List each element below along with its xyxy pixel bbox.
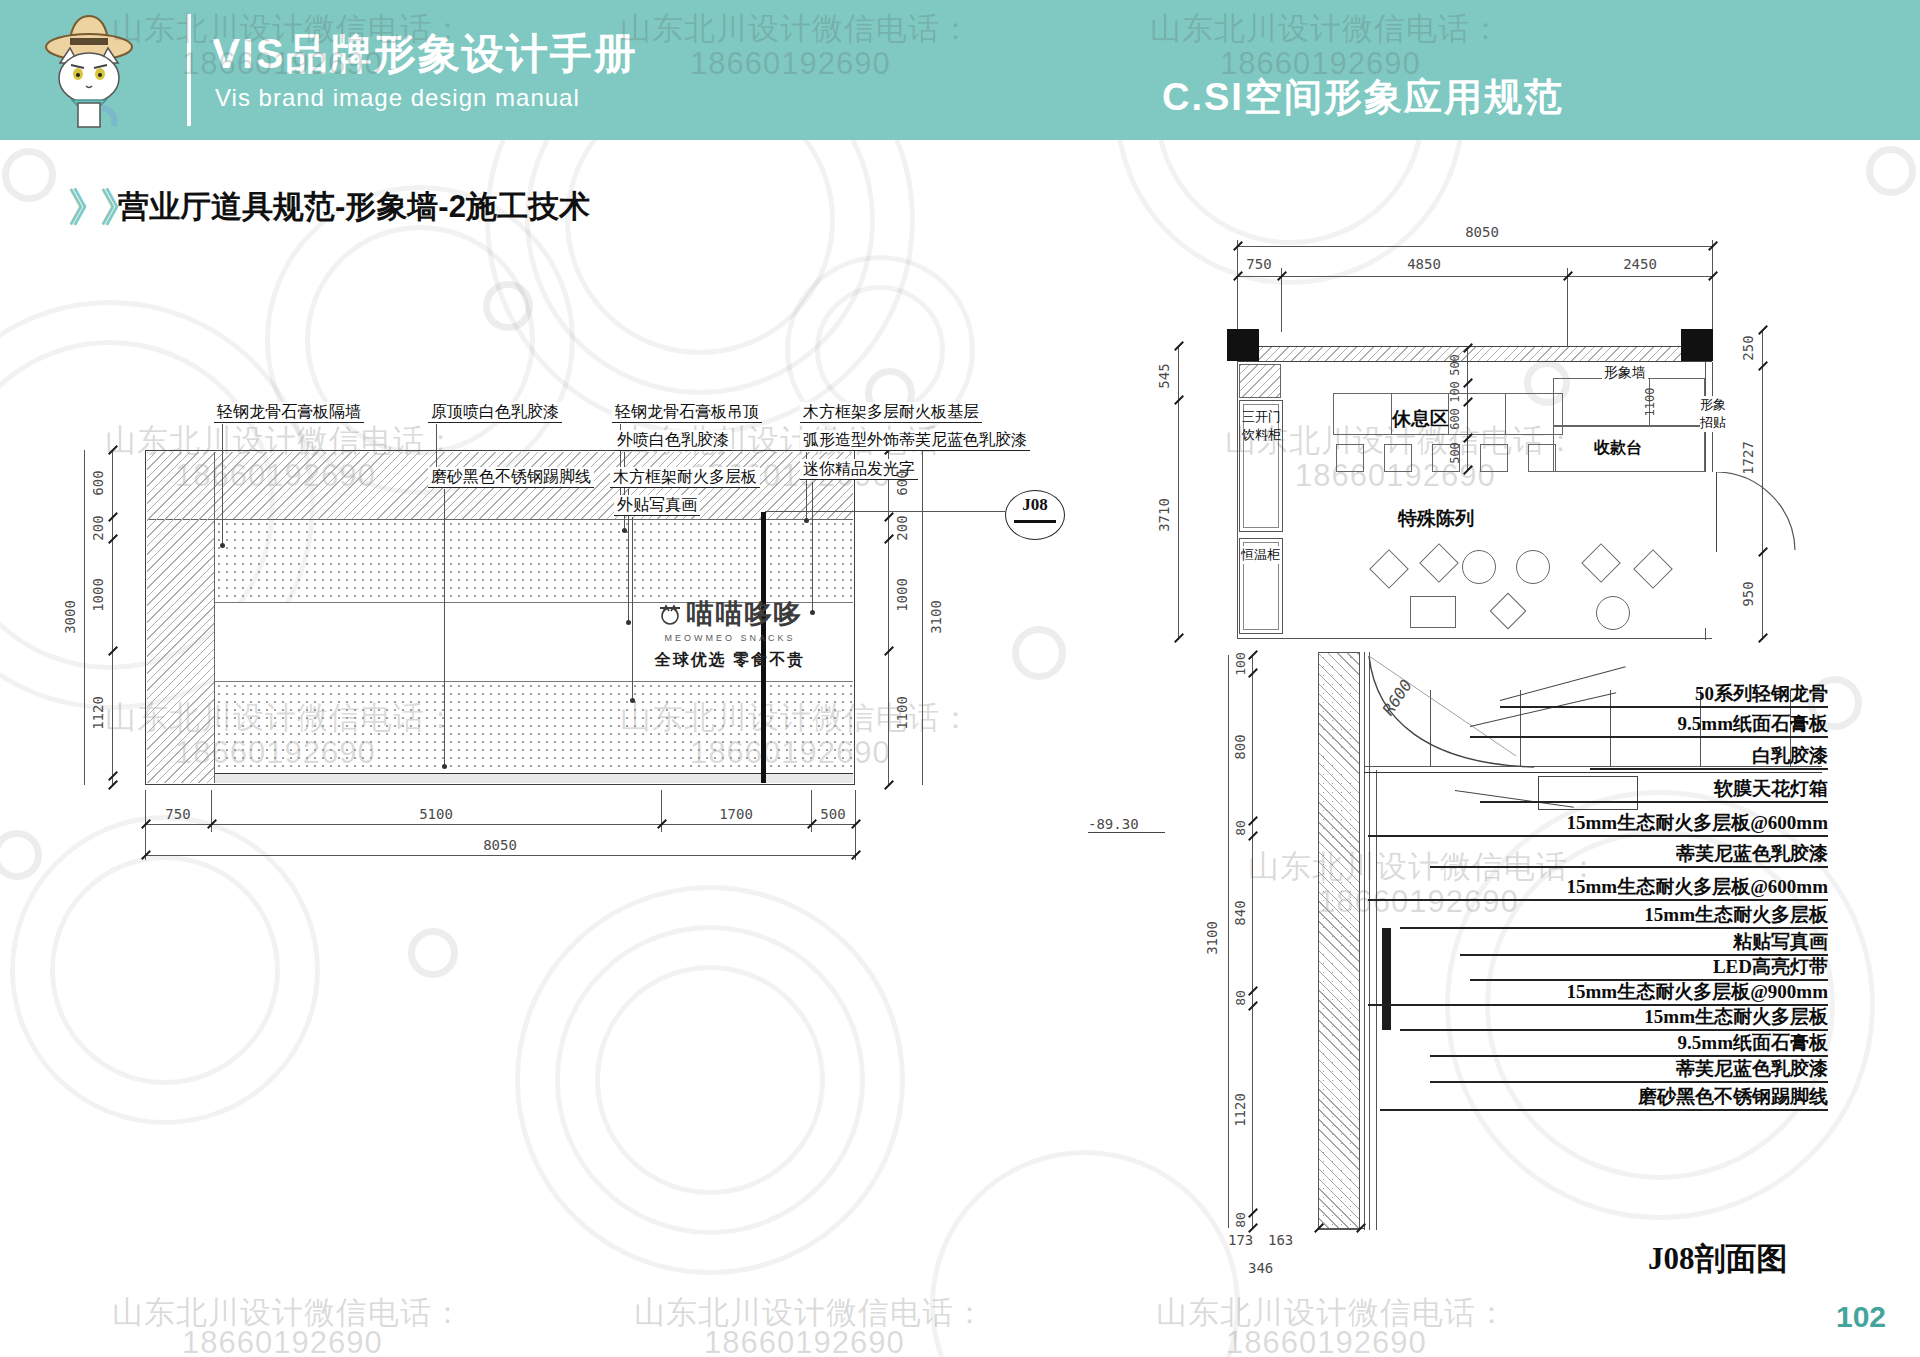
ring-decoration xyxy=(50,855,280,1085)
watermark-text: 18660192690 xyxy=(704,1325,905,1357)
dim-value: 80 xyxy=(1233,1212,1248,1228)
dim-value: 1727 xyxy=(1740,441,1756,475)
circle-decoration xyxy=(1012,626,1066,680)
dimension-tick xyxy=(1174,633,1184,643)
dimension-line xyxy=(84,450,85,785)
dimension-tick xyxy=(884,534,894,544)
leader-line xyxy=(444,489,445,766)
material-label: 磨砂黑色不锈钢踢脚线 xyxy=(428,467,594,488)
elevation-lower-panel xyxy=(215,682,853,773)
dimension-tick xyxy=(1248,986,1258,996)
circle-decoration xyxy=(408,928,458,978)
leader-dot xyxy=(622,528,627,533)
display-diamond xyxy=(1633,549,1673,589)
manual-page: VIS品牌形象设计手册 Vis brand image design manua… xyxy=(0,0,1920,1357)
ring-decoration xyxy=(595,965,825,1195)
dim-value-total: 3000 xyxy=(62,600,78,634)
leader-line xyxy=(624,452,625,530)
dim-value-total: 3100 xyxy=(928,600,944,634)
circle-decoration xyxy=(483,281,533,331)
section-material-label: 15mm生态耐火多层板 xyxy=(1400,904,1828,929)
thermo-cabinet-label: 恒温柜 xyxy=(1241,546,1280,564)
section-callout-bubble: J08 xyxy=(1005,490,1065,540)
dimension-tick xyxy=(884,646,894,656)
chair xyxy=(1336,444,1364,472)
section-material-label: LED高亮灯带 xyxy=(1470,956,1828,981)
led-strip xyxy=(1382,928,1391,1030)
material-label: 弧形造型外饰蒂芙尼蓝色乳胶漆 xyxy=(800,430,1030,451)
plan-bottom-wall xyxy=(1237,638,1712,639)
section-material-label: 15mm生态耐火多层板 xyxy=(1400,1006,1828,1031)
display-table xyxy=(1410,596,1456,628)
plan-left-wall xyxy=(1237,346,1238,638)
dim-value: 100 xyxy=(1448,381,1462,403)
material-label: 轻钢龙骨石膏板吊顶 xyxy=(612,402,762,423)
section-material-label: 50系列轻钢龙骨 xyxy=(1500,683,1828,708)
display-round-table xyxy=(1462,550,1496,584)
dimension-tick xyxy=(884,780,894,790)
material-label: 原顶喷白色乳胶漆 xyxy=(428,402,562,423)
dimension-line xyxy=(1467,348,1468,470)
dimension-tick xyxy=(1248,816,1258,826)
dim-value: 1120 xyxy=(1232,1093,1248,1127)
dimension-tick xyxy=(1248,1208,1258,1218)
dimension-line xyxy=(1178,346,1179,640)
dim-value: 4850 xyxy=(1407,256,1441,272)
dim-value: 600 xyxy=(1448,408,1462,430)
dim-value-total: 8050 xyxy=(1465,224,1499,240)
display-diamond xyxy=(1490,593,1527,630)
circle-decoration xyxy=(0,830,42,880)
cashier-label: 收款台 xyxy=(1594,438,1642,459)
door-swing-arc xyxy=(1717,472,1797,552)
dim-value: 600 xyxy=(894,470,910,495)
dim-value: 950 xyxy=(1740,581,1756,606)
display-round-table xyxy=(1596,596,1630,630)
brand-slogan: 全球优选 零食不贵 xyxy=(640,650,820,671)
section-material-label: 蒂芙尼蓝色乳胶漆 xyxy=(1430,1058,1828,1083)
leader-dot xyxy=(630,698,635,703)
material-label: 木方框架多层耐火板基层 xyxy=(800,402,982,423)
display-diamond xyxy=(1369,549,1409,589)
watermark-text: 18660192690 xyxy=(182,1325,383,1357)
dim-value: 173 xyxy=(1228,1232,1253,1248)
image-wall-zone xyxy=(1553,378,1705,426)
dim-value: 545 xyxy=(1156,363,1172,388)
extension-line xyxy=(1712,240,1713,332)
display-diamond xyxy=(1581,543,1621,583)
elevation-upper-panel xyxy=(215,520,853,602)
dim-value: 1100 xyxy=(894,696,910,730)
dim-value: 500 xyxy=(1448,354,1462,376)
section-drawing-title: J08剖面图 xyxy=(1648,1238,1788,1280)
dim-value: 2450 xyxy=(1623,256,1657,272)
material-label: 轻钢龙骨石膏板隔墙 xyxy=(214,402,364,423)
dimension-line xyxy=(1228,655,1229,1228)
dimension-line xyxy=(888,450,889,785)
brand-subtitle: MEOWMEO SNACKS xyxy=(640,633,820,643)
material-label: 外贴写真画 xyxy=(614,495,700,516)
dim-value: 1120 xyxy=(90,696,106,730)
plan-top-wall xyxy=(1237,346,1712,362)
dimension-line xyxy=(145,855,855,856)
watermark-text: 18660192690 xyxy=(182,46,383,82)
dimension-line xyxy=(1237,246,1712,247)
dimension-tick xyxy=(1758,633,1768,643)
section-material-label: 9.5mm纸面石膏板 xyxy=(1470,713,1828,738)
leader-line xyxy=(222,424,223,545)
dimension-tick xyxy=(1174,341,1184,351)
extension-line xyxy=(1567,268,1568,346)
watermark-text: 18660192690 xyxy=(1220,46,1421,82)
plan-left-wall-hatch xyxy=(1239,364,1281,398)
dim-value: 200 xyxy=(894,515,910,540)
dim-value: 500 xyxy=(820,806,845,822)
dimension-line xyxy=(1237,276,1712,277)
dimension-line xyxy=(1252,655,1253,1228)
cat-icon xyxy=(658,602,682,626)
dim-value: 1000 xyxy=(90,578,106,612)
dim-value: 600 xyxy=(90,470,106,495)
dim-value: 500 xyxy=(1448,442,1462,464)
dim-value: 750 xyxy=(165,806,190,822)
dim-value: 1700 xyxy=(719,806,753,822)
leader-line xyxy=(436,424,437,472)
image-poster-label: 形象 招贴 xyxy=(1700,396,1726,432)
watermark-text: 18660192690 xyxy=(1226,1325,1427,1357)
section-finish-line xyxy=(1364,652,1365,1230)
dim-value: 80 xyxy=(1233,820,1248,836)
dim-value: 840 xyxy=(1232,900,1248,925)
section-material-label: 15mm生态耐火多层板@600mm xyxy=(1368,876,1828,901)
brand-name: 喵喵哆哆 xyxy=(687,596,803,632)
watermark-text: 18660192690 xyxy=(690,46,891,82)
dimension-tick xyxy=(1463,378,1473,388)
dim-value: 100 xyxy=(1233,652,1248,675)
dimension-tick xyxy=(108,780,118,790)
elevation-left-wall-hatch xyxy=(147,452,215,783)
section-material-label: 15mm生态耐火多层板@600mm xyxy=(1368,812,1828,837)
dim-value: 200 xyxy=(90,515,106,540)
ceiling-line xyxy=(1364,772,1822,773)
material-label: 外喷白色乳胶漆 xyxy=(614,430,732,451)
section-wall xyxy=(1318,652,1360,1230)
dimension-tick xyxy=(1248,668,1258,678)
dim-value: 1000 xyxy=(894,578,910,612)
dim-value: 3710 xyxy=(1156,498,1172,532)
beverage-cabinet-label: 三开门 饮料柜 xyxy=(1242,408,1281,444)
dimension-tick xyxy=(1758,361,1768,371)
dim-value: 1100 xyxy=(1643,388,1657,417)
leader-line xyxy=(812,482,813,612)
dimension-tick xyxy=(1248,650,1258,660)
page-number: 102 xyxy=(1836,1300,1886,1334)
plan-column xyxy=(1681,329,1713,361)
manual-title-en: Vis brand image design manual xyxy=(215,84,580,112)
watermark-text: 山东北川设计微信电话： xyxy=(1150,8,1502,50)
wall-brand-logo: 喵喵哆哆 MEOWMEO SNACKS 全球优选 零食不贵 xyxy=(640,596,820,671)
dim-value: 5100 xyxy=(419,806,453,822)
section-material-label: 9.5mm纸面石膏板 xyxy=(1430,1032,1828,1057)
material-label: 木方框架耐火多层板 xyxy=(610,467,760,488)
dimension-tick xyxy=(1248,1001,1258,1011)
leader-dot xyxy=(804,518,809,523)
display-diamond xyxy=(1419,543,1459,583)
section-material-label: 磨砂黑色不锈钢踢脚线 xyxy=(1380,1086,1828,1111)
dim-value: 163 xyxy=(1268,1232,1293,1248)
chair xyxy=(1528,444,1556,472)
dim-value: 80 xyxy=(1233,990,1248,1006)
section-material-label: 粘贴写真画 xyxy=(1460,931,1828,956)
page-title: 营业厅道具规范-形象墙-2施工技术 xyxy=(118,186,590,228)
dim-value: 250 xyxy=(1740,335,1756,360)
section-material-label: 15mm生态耐火多层板@900mm xyxy=(1368,981,1828,1006)
dimension-tick xyxy=(1248,831,1258,841)
level-mark: -89.30 xyxy=(1088,816,1165,833)
image-wall-label: 形象墙 xyxy=(1602,364,1648,382)
extension-line xyxy=(1237,240,1238,332)
plan-column xyxy=(1227,329,1259,361)
section-material-label: 白乳胶漆 xyxy=(1590,745,1828,770)
leader-dot xyxy=(442,764,447,769)
dimension-line xyxy=(112,450,113,785)
leader-line xyxy=(632,517,633,700)
circle-decoration xyxy=(1866,146,1916,196)
dim-value: 800 xyxy=(1232,734,1248,759)
leader-dot xyxy=(626,620,631,625)
dimension-tick xyxy=(884,512,894,522)
chair xyxy=(1480,444,1508,472)
callout-connector xyxy=(765,511,1005,512)
section-material-label: 蒂芙尼蓝色乳胶漆 xyxy=(1430,843,1828,868)
elevation-skirting xyxy=(215,773,853,783)
leader-dot xyxy=(220,543,225,548)
watermark-text: 山东北川设计微信电话： xyxy=(620,8,972,50)
circle-decoration xyxy=(2,148,56,202)
watermark-text: 山东北川设计微信电话： xyxy=(112,8,464,50)
dim-value-total: 3100 xyxy=(1204,921,1220,955)
rest-area-label: 休息区 xyxy=(1392,406,1449,432)
dimension-tick xyxy=(1758,325,1768,335)
special-display-label: 特殊陈列 xyxy=(1398,506,1474,532)
dim-value: 750 xyxy=(1246,256,1271,272)
dimension-line xyxy=(922,450,923,785)
chair xyxy=(1384,444,1412,472)
dimension-line xyxy=(145,824,855,825)
display-round-table xyxy=(1516,550,1550,584)
section-material-label: 软膜天花灯箱 xyxy=(1480,778,1828,803)
section-callout-label: J08 xyxy=(1022,495,1048,514)
dim-value: 346 xyxy=(1248,1260,1273,1276)
dim-value-total: 8050 xyxy=(483,837,517,853)
dimension-tick xyxy=(1174,395,1184,405)
